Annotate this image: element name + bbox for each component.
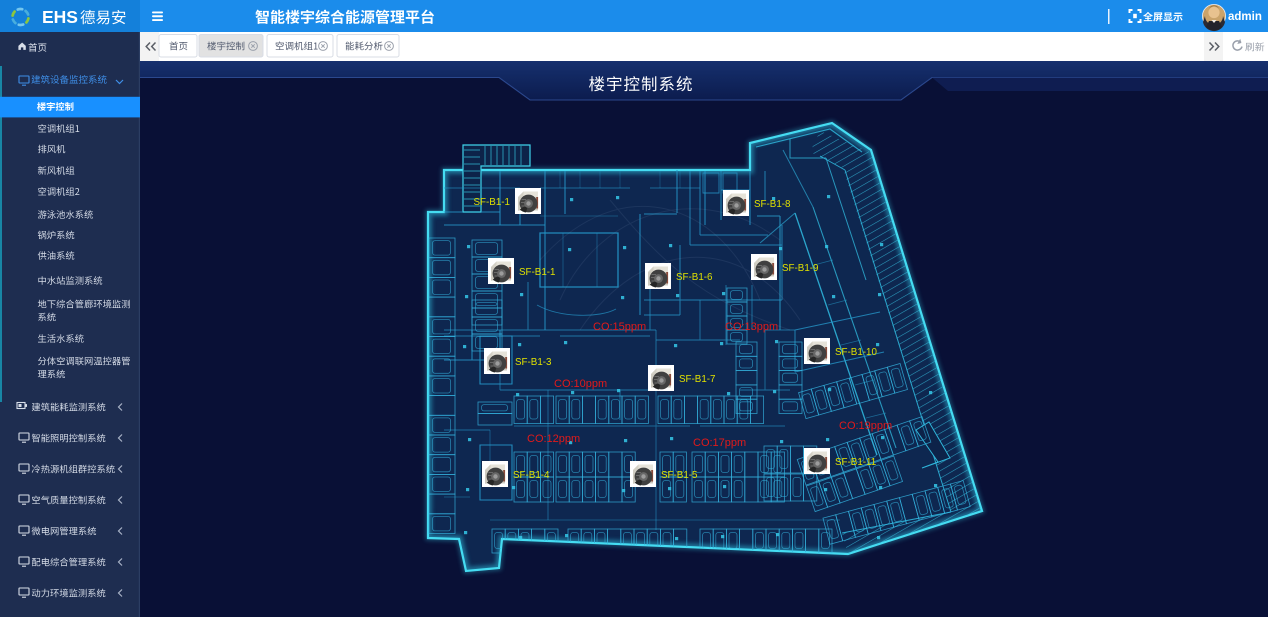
svg-text:CO:12ppm: CO:12ppm: [527, 433, 580, 445]
svg-text:SF-B1-6: SF-B1-6: [676, 272, 713, 283]
svg-text:SF-B1-5: SF-B1-5: [661, 470, 698, 481]
svg-text:CO:19ppm: CO:19ppm: [839, 420, 892, 432]
svg-text:CO:17ppm: CO:17ppm: [693, 437, 746, 449]
svg-text:SF-B1-11: SF-B1-11: [835, 457, 876, 468]
svg-text:SF-B1-4: SF-B1-4: [513, 470, 550, 481]
svg-text:CO:15ppm: CO:15ppm: [593, 321, 646, 333]
svg-text:CO:10ppm: CO:10ppm: [554, 378, 607, 390]
svg-text:admin: admin: [1228, 11, 1262, 23]
svg-text:EHS: EHS: [42, 7, 78, 27]
svg-text:SF-B1-9: SF-B1-9: [782, 263, 818, 274]
svg-text:SF-B1-8: SF-B1-8: [754, 199, 791, 210]
svg-text:SF-B1-1: SF-B1-1: [474, 197, 510, 208]
svg-text:SF-B1-7: SF-B1-7: [679, 374, 715, 385]
svg-text:SF-B1-3: SF-B1-3: [515, 357, 552, 368]
svg-text:SF-B1-10: SF-B1-10: [835, 347, 877, 358]
svg-text:CO:13ppm: CO:13ppm: [725, 321, 778, 333]
svg-text:SF-B1-1: SF-B1-1: [519, 267, 555, 278]
